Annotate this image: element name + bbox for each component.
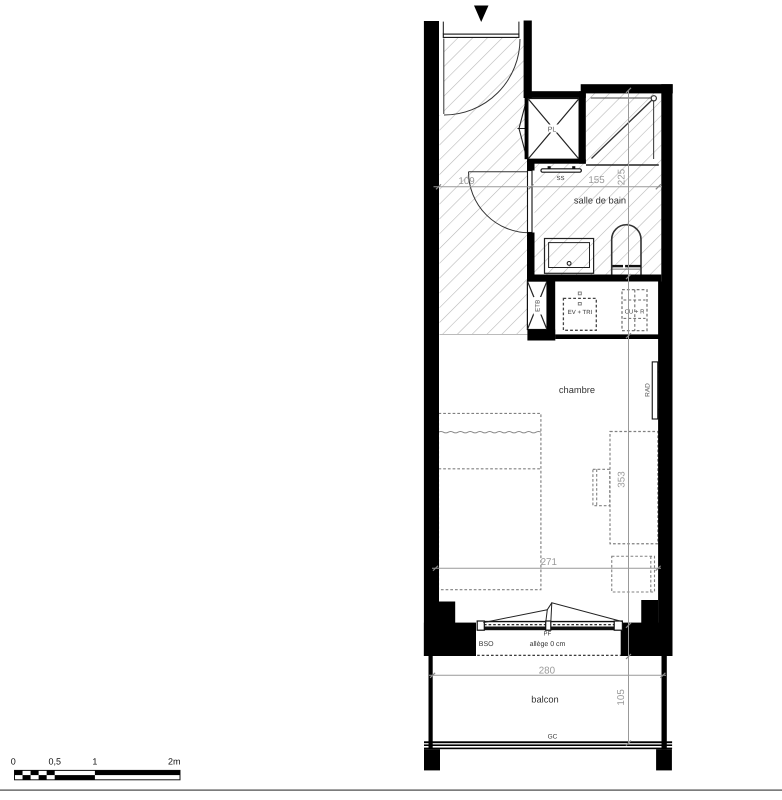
svg-text:280: 280 xyxy=(539,665,556,676)
svg-text:105: 105 xyxy=(616,689,627,706)
svg-text:EV + TRI: EV + TRI xyxy=(568,309,593,316)
svg-text:155: 155 xyxy=(588,175,605,186)
svg-text:225: 225 xyxy=(617,168,628,185)
svg-text:CU + R: CU + R xyxy=(625,308,646,315)
svg-text:GC: GC xyxy=(548,734,558,741)
svg-text:2m: 2m xyxy=(168,757,181,767)
svg-text:271: 271 xyxy=(541,557,557,568)
svg-text:0: 0 xyxy=(11,757,16,767)
svg-text:PF: PF xyxy=(543,630,551,637)
svg-text:balcon: balcon xyxy=(531,694,558,704)
svg-text:1: 1 xyxy=(92,757,97,767)
svg-text:BSO: BSO xyxy=(479,641,494,648)
svg-text:chambre: chambre xyxy=(559,385,595,395)
svg-text:0,5: 0,5 xyxy=(48,757,61,767)
svg-text:109: 109 xyxy=(458,176,474,187)
svg-text:SS: SS xyxy=(556,175,564,182)
svg-text:RAD: RAD xyxy=(645,383,652,397)
svg-text:allège 0 cm: allège 0 cm xyxy=(530,640,566,648)
svg-text:salle de bain: salle de bain xyxy=(574,196,626,206)
svg-text:353: 353 xyxy=(616,471,627,488)
svg-text:PL: PL xyxy=(548,127,557,134)
svg-text:ETB: ETB xyxy=(535,300,542,312)
